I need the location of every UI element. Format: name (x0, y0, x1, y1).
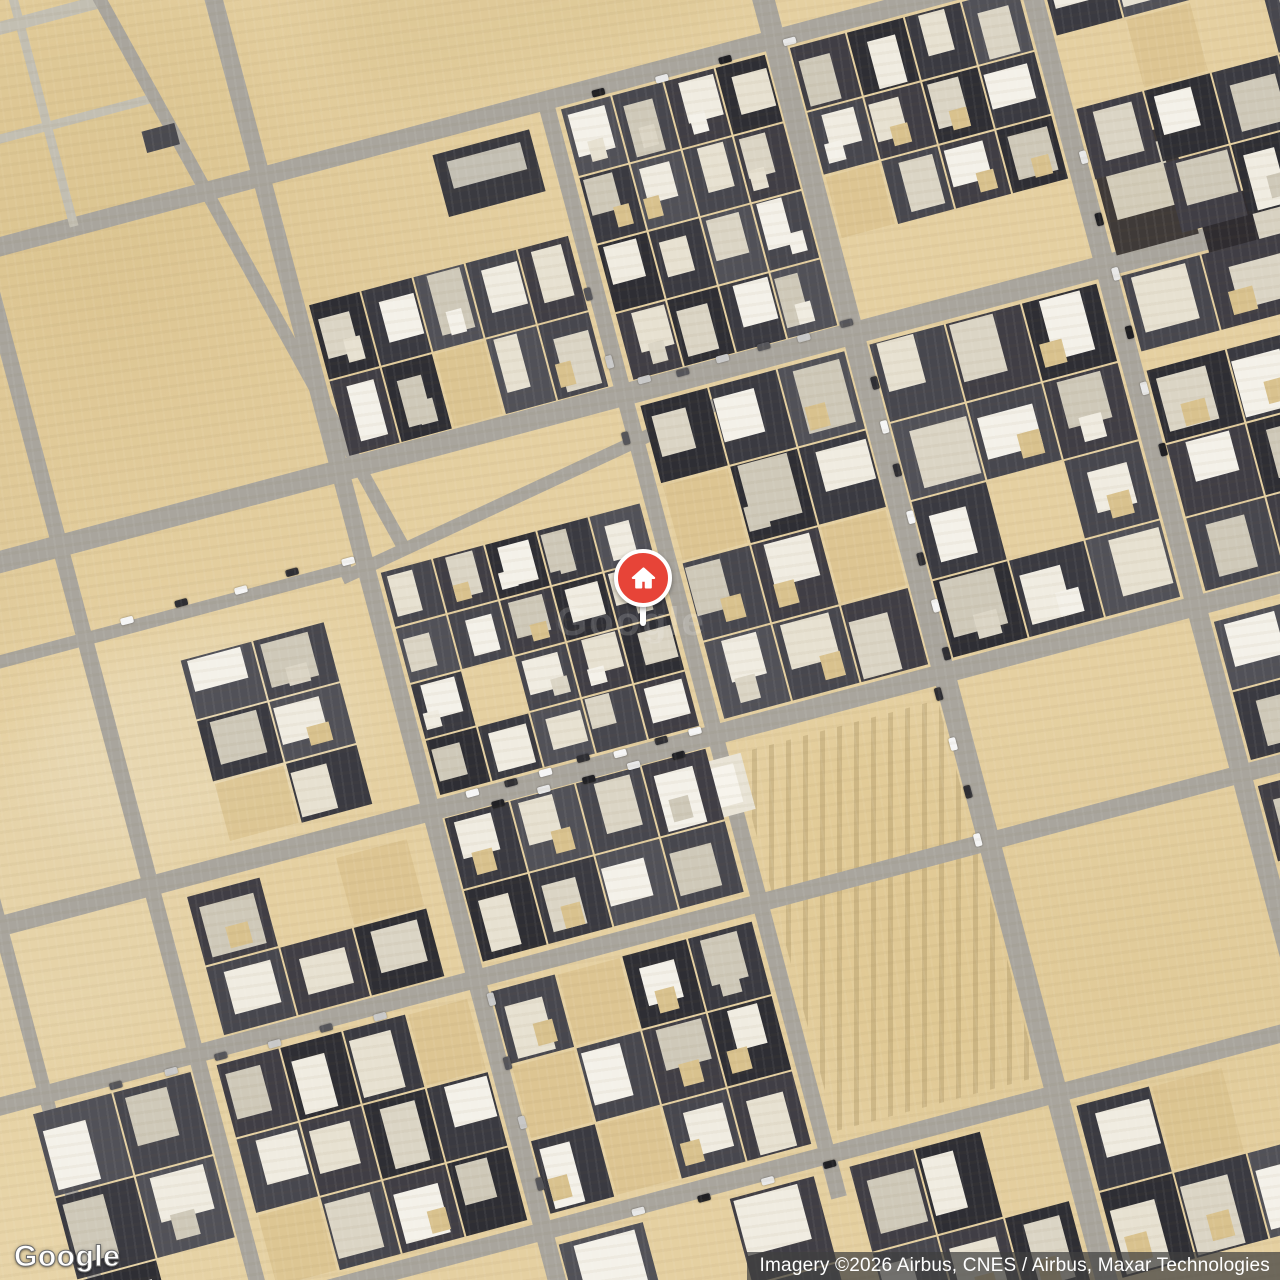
google-logo[interactable]: Google (14, 1240, 120, 1274)
villa (1260, 0, 1280, 53)
attribution-text: Imagery ©2026 Airbus, CNES / Airbus, Max… (760, 1255, 1270, 1276)
home-icon (630, 565, 657, 592)
empty-parcel (1126, 2, 1208, 87)
map-plane (0, 0, 1280, 1280)
attribution-bar: Imagery ©2026 Airbus, CNES / Airbus, Max… (747, 1252, 1280, 1280)
marker-circle[interactable] (614, 549, 672, 607)
satellite-map-viewport[interactable]: Google Google Imagery ©2026 Airbus, CNES… (0, 0, 1280, 1280)
